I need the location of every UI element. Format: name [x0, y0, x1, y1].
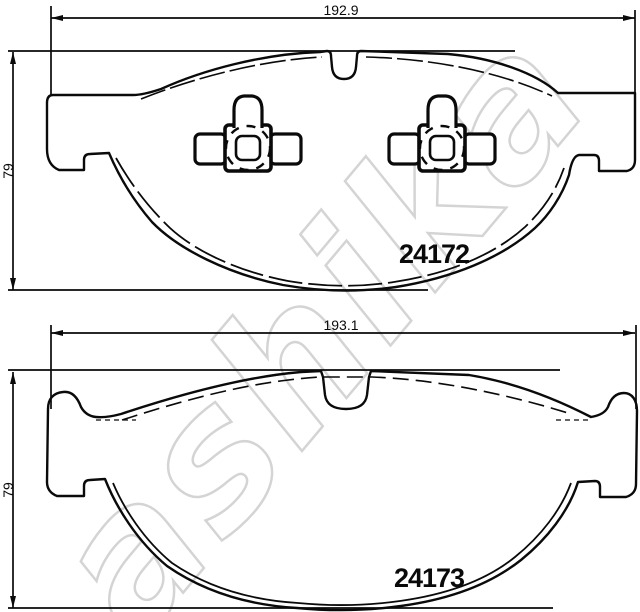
bottom-drawing: 193.1 79 24173 — [0, 317, 637, 610]
arrowhead-right — [623, 15, 635, 21]
arrowhead-bottom — [10, 596, 16, 608]
arrowhead-top — [10, 372, 16, 384]
bottom-width-label: 193.1 — [323, 317, 358, 333]
part-number: 24173 — [394, 563, 465, 593]
spring-clip-left — [195, 96, 301, 171]
pad-outline — [47, 51, 635, 291]
clip-wing-right — [270, 134, 301, 164]
top-width-label: 192.9 — [323, 2, 358, 18]
arrowhead-left — [51, 330, 63, 336]
part-number: 24172 — [399, 239, 469, 269]
friction-material-edge — [116, 158, 564, 286]
top-drawing: 192.9 79 — [0, 2, 635, 291]
clip-hole — [236, 136, 260, 160]
arrowhead-top — [10, 52, 16, 64]
clip-hole — [430, 136, 454, 160]
clip-neck — [428, 96, 456, 128]
technical-drawing-page: ashika 192.9 79 — [0, 0, 640, 612]
clip-wing-left — [195, 134, 226, 164]
inner-edge-top-left — [141, 57, 322, 99]
top-height-label: 79 — [0, 163, 16, 179]
bottom-height-label: 79 — [0, 482, 16, 498]
inner-edge-top — [122, 377, 568, 420]
arrowhead-bottom — [10, 278, 16, 290]
spring-clip-right — [389, 96, 495, 171]
clip-wing-left — [389, 134, 420, 164]
pad-outline — [47, 371, 637, 610]
bottom-height-dimension — [8, 370, 560, 608]
friction-material-edge — [113, 483, 571, 605]
inner-edge-top-right — [366, 57, 552, 96]
arrowhead-right — [623, 330, 635, 336]
clip-wing-right — [464, 134, 495, 164]
brake-pad-diagram-svg: 192.9 79 — [0, 0, 640, 612]
clip-neck — [234, 96, 262, 128]
arrowhead-left — [51, 15, 63, 21]
